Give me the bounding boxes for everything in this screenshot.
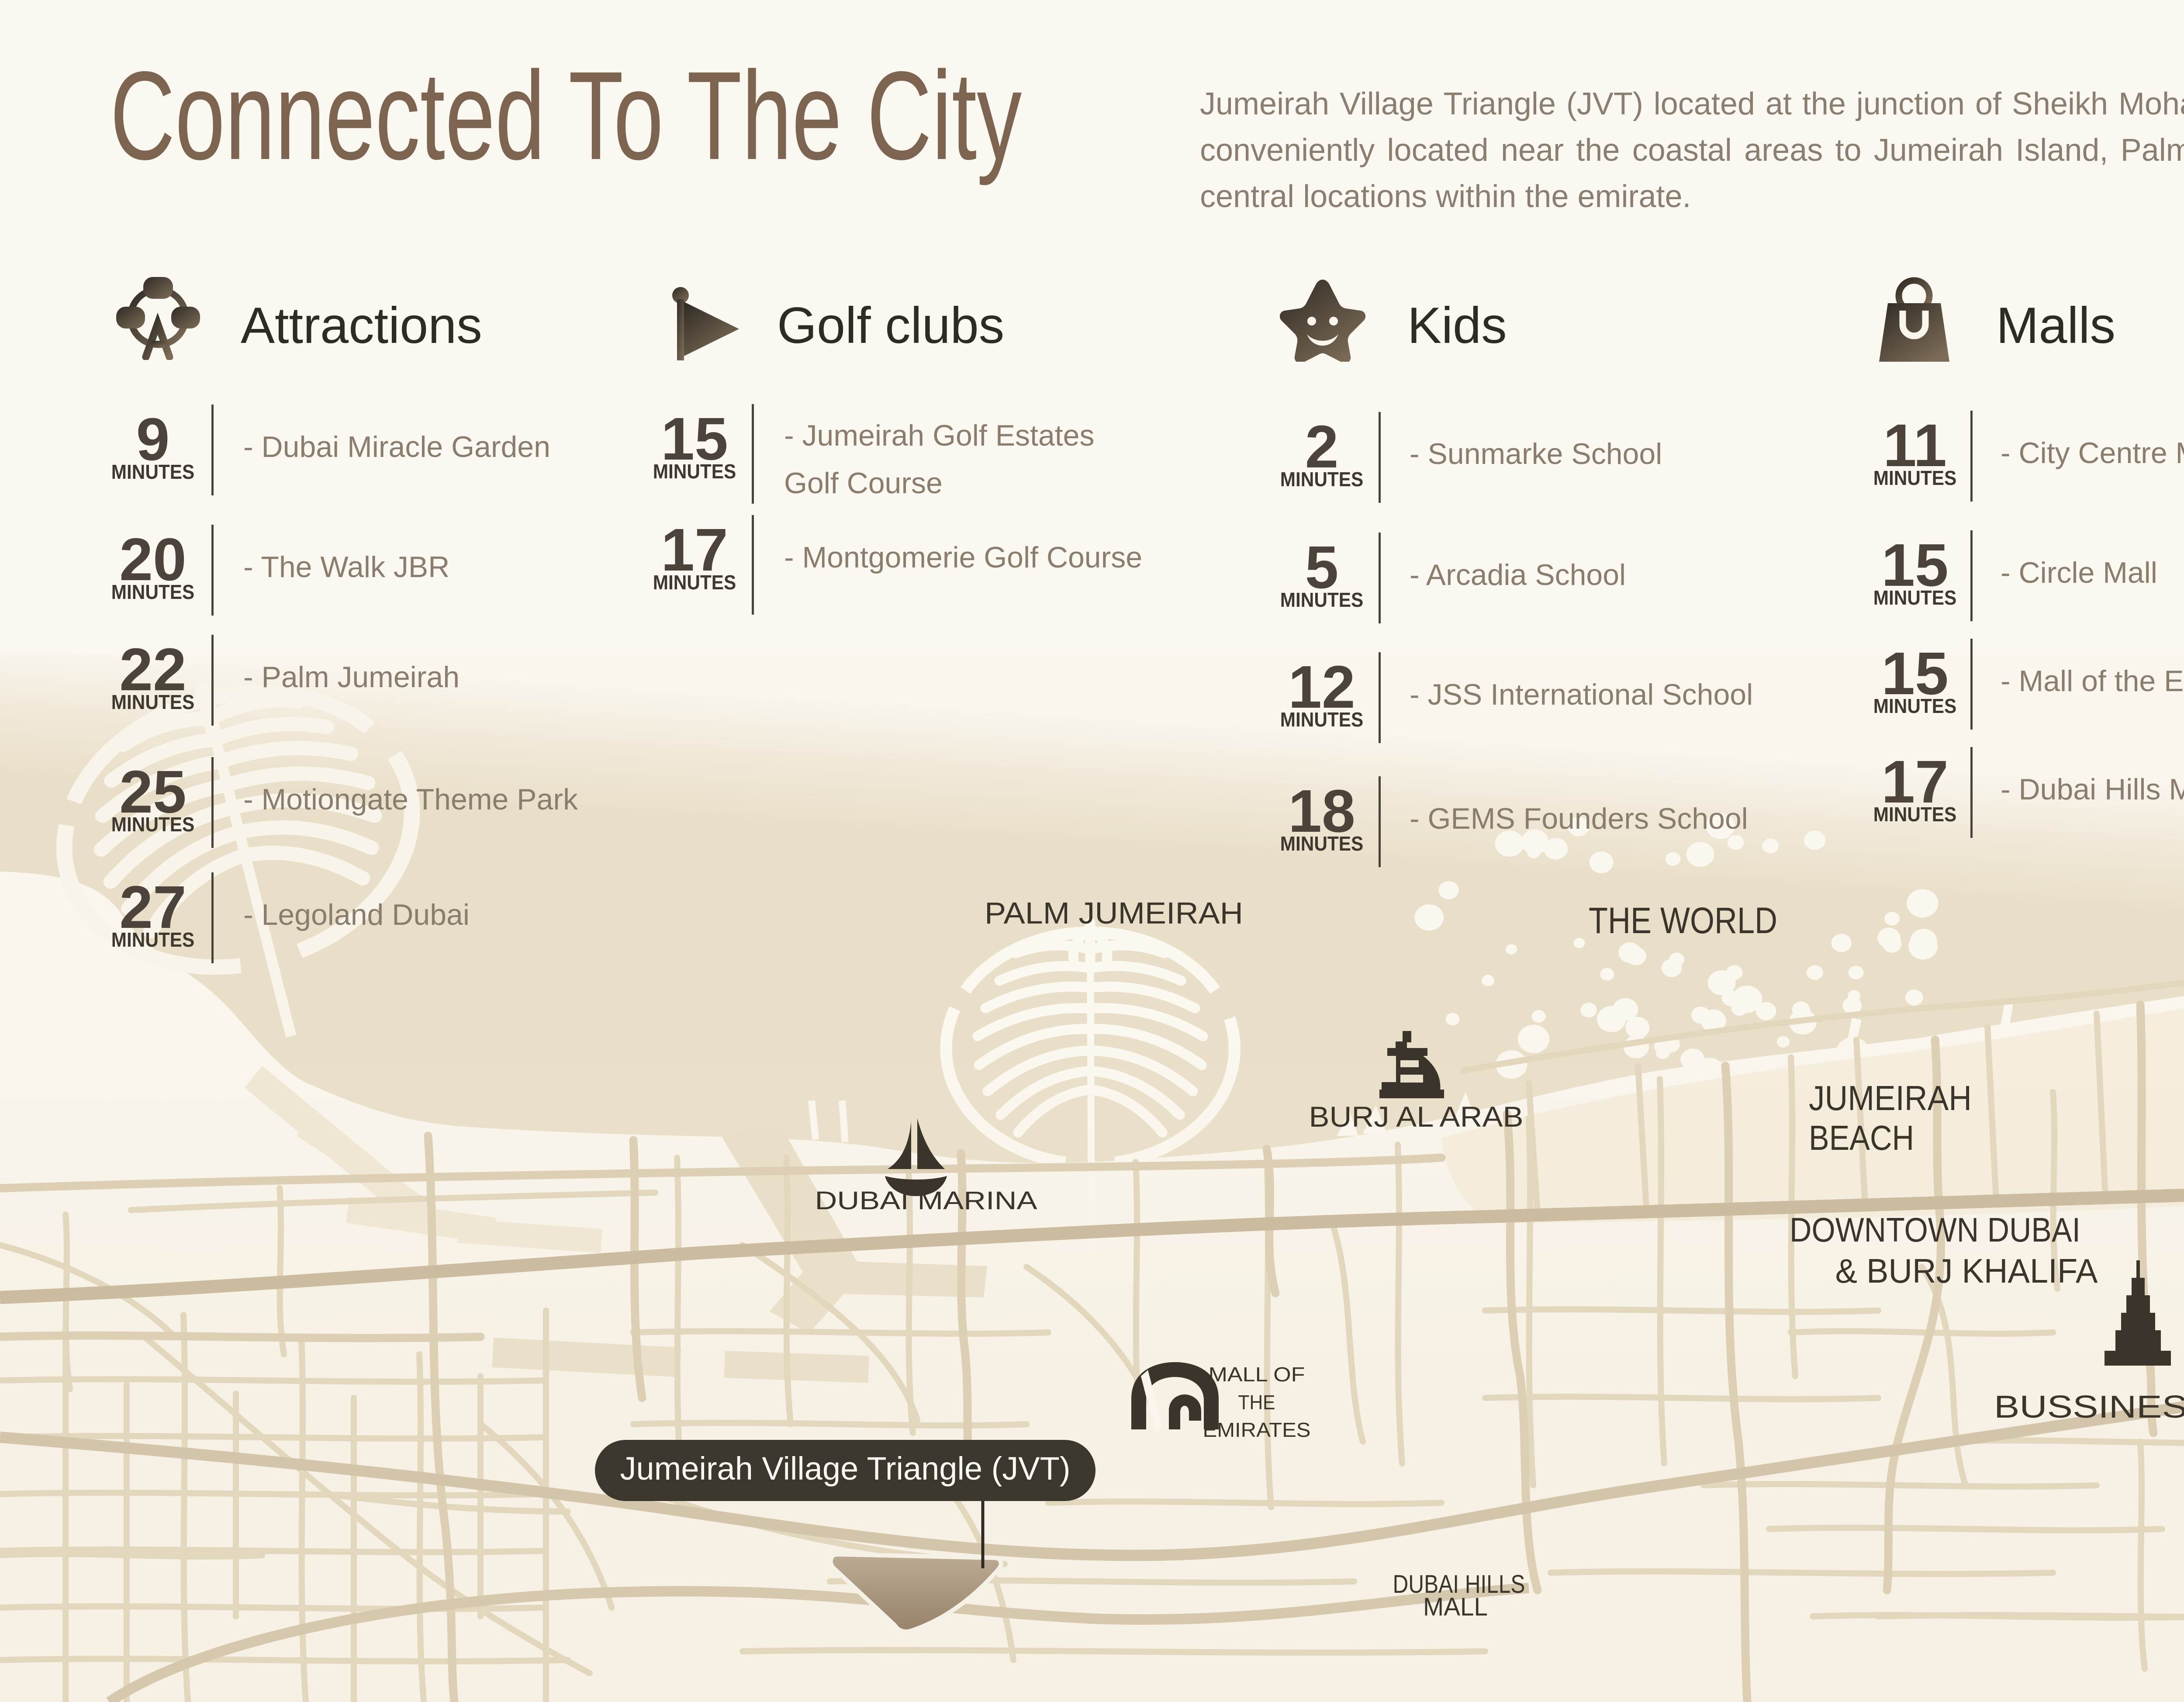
svg-text:JUMEIRAH: JUMEIRAH [1809, 1079, 1972, 1117]
svg-text:MALL: MALL [1423, 1593, 1488, 1621]
svg-text:THE WORLD: THE WORLD [1589, 900, 1777, 941]
svg-text:DUBAI MARINA: DUBAI MARINA [815, 1187, 1037, 1215]
svg-text:PALM JUMEIRAH: PALM JUMEIRAH [985, 896, 1243, 930]
svg-text:BUSSINES BAY: BUSSINES BAY [1994, 1390, 2184, 1425]
svg-text:MALL OF: MALL OF [1209, 1363, 1305, 1386]
svg-text:BEACH: BEACH [1809, 1118, 1914, 1157]
svg-text:EMIRATES: EMIRATES [1203, 1418, 1311, 1441]
svg-text:& BURJ KHALIFA: & BURJ KHALIFA [1835, 1252, 2098, 1290]
svg-text:BURJ AL ARAB: BURJ AL ARAB [1309, 1100, 1524, 1133]
svg-text:DOWNTOWN DUBAI: DOWNTOWN DUBAI [1790, 1211, 2080, 1249]
svg-text:Jumeirah Village Triangle (JVT: Jumeirah Village Triangle (JVT) [620, 1450, 1071, 1487]
svg-text:THE: THE [1238, 1391, 1275, 1414]
